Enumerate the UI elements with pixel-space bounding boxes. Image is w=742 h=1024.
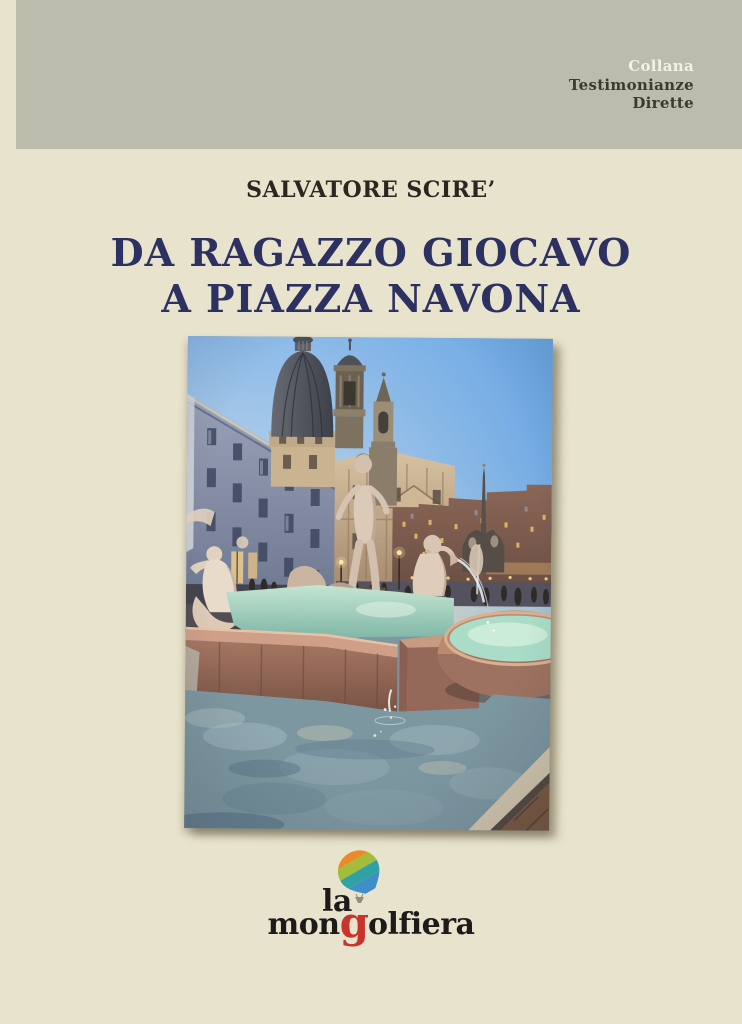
series-label-dirette: Dirette: [569, 94, 694, 113]
series-text: Collana Testimonianze Dirette: [569, 57, 694, 113]
book-cover: Collana Testimonianze Dirette SALVATORE …: [0, 0, 742, 1024]
piazza-navona-illustration: [184, 336, 553, 831]
series-banner: Collana Testimonianze Dirette: [16, 0, 742, 149]
logo-text-mongolfiera: mongolfiera: [0, 905, 742, 943]
cover-photo-piazza-navona-fountain: [184, 336, 553, 831]
author-name: SALVATORE SCIRE’: [0, 176, 742, 204]
book-title: DA RAGAZZO GIOCAVO A PIAZZA NAVONA: [0, 230, 742, 322]
logo-text-olfiera: olfiera: [368, 907, 475, 942]
series-label-testimonianze: Testimonianze: [569, 76, 694, 95]
publisher-logo: la mongolfiera: [0, 850, 742, 970]
logo-letter-g: g: [340, 898, 368, 947]
title-line-2: A PIAZZA NAVONA: [0, 276, 742, 322]
title-line-1: DA RAGAZZO GIOCAVO: [0, 230, 742, 276]
series-label-collana: Collana: [569, 57, 694, 76]
logo-text-mon: mon: [268, 907, 340, 942]
